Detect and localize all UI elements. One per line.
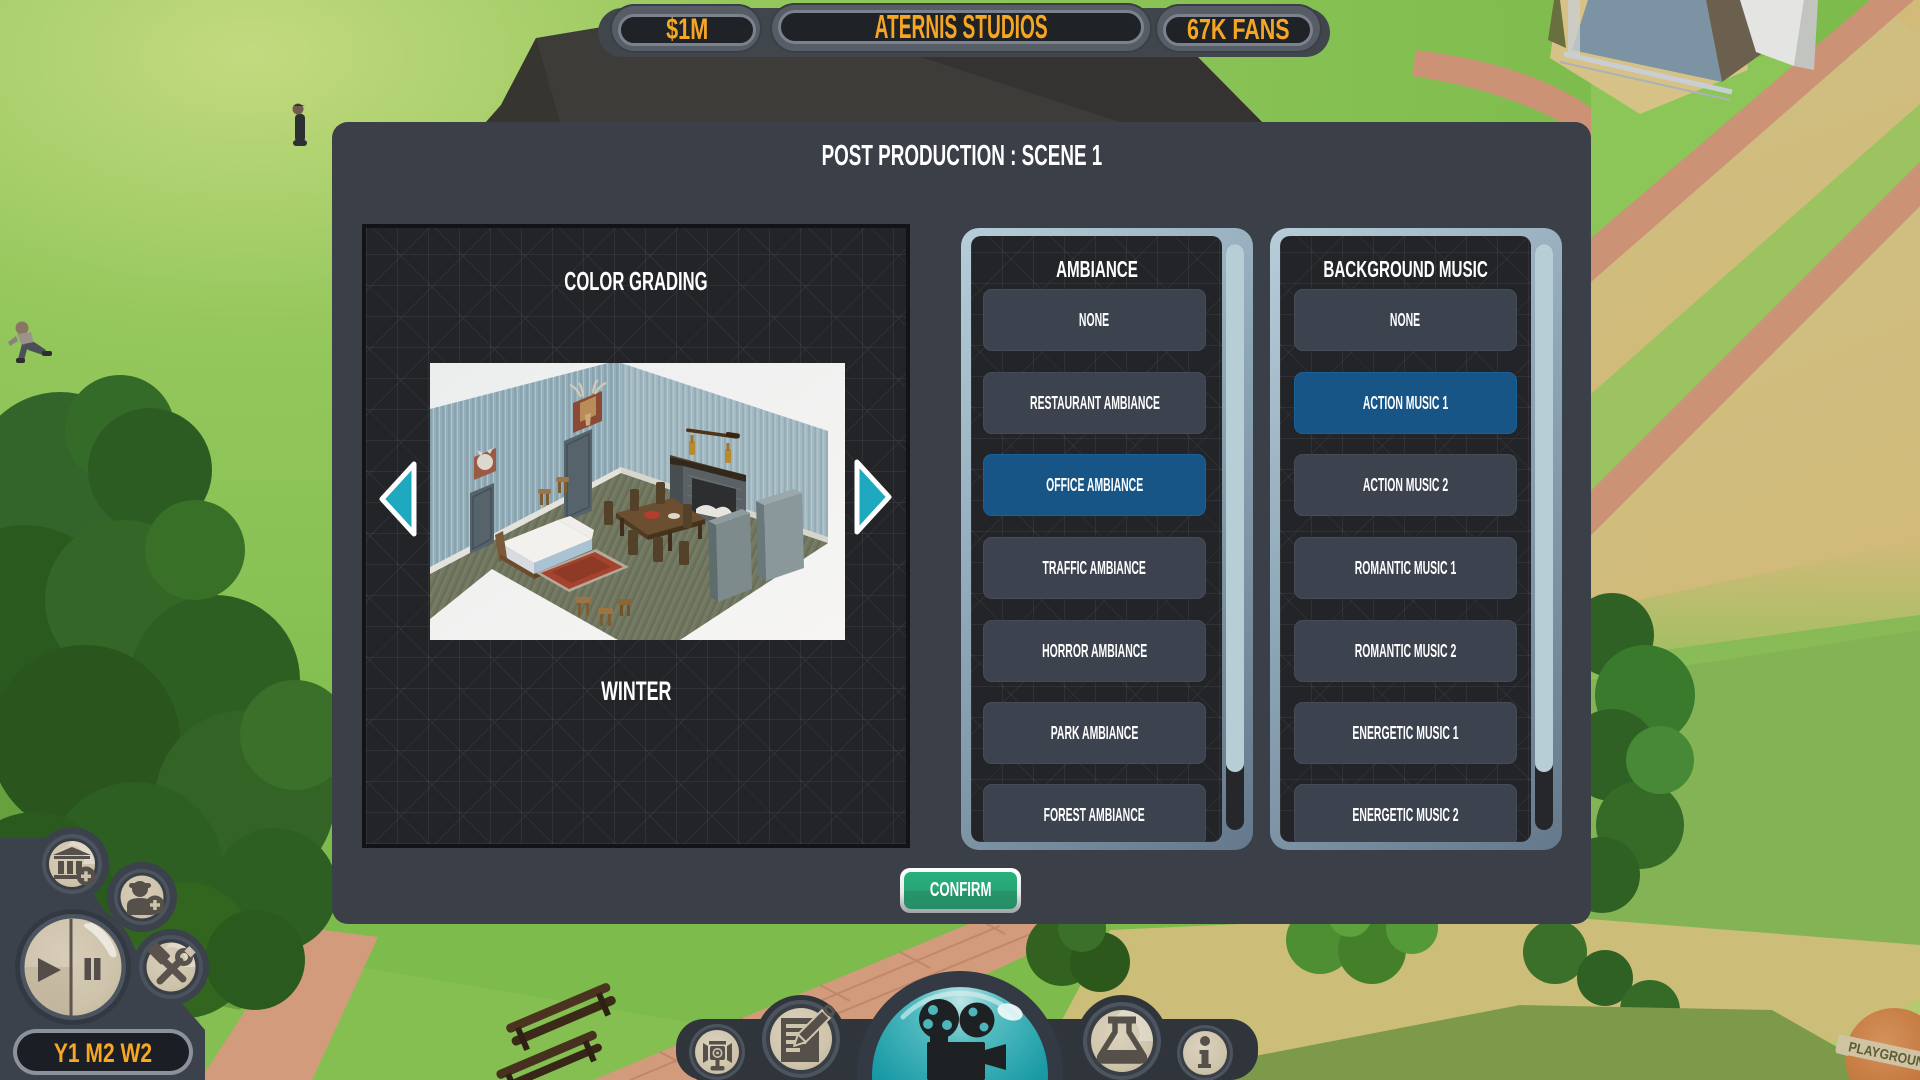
svg-text:Y1 M2 W2: Y1 M2 W2 [54, 1039, 152, 1069]
